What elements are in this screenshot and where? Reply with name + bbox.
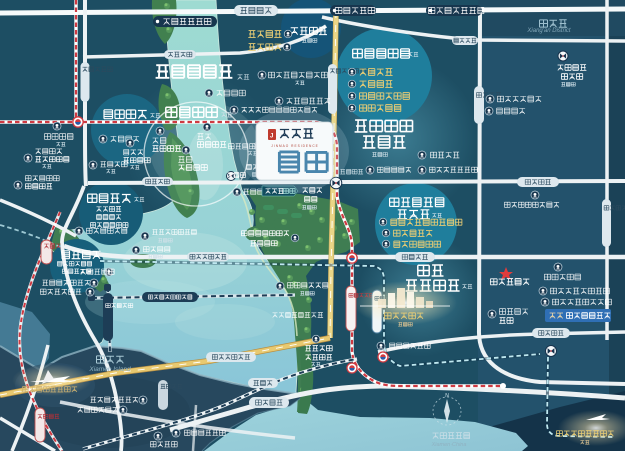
svg-text:Xiamen Island: Xiamen Island bbox=[88, 366, 131, 373]
svg-text:Xiang'an District: Xiang'an District bbox=[526, 28, 570, 34]
svg-text:Xiamen·China: Xiamen·China bbox=[431, 442, 467, 448]
svg-text:N: N bbox=[445, 393, 449, 399]
svg-text:JINMAO RESIDENCE: JINMAO RESIDENCE bbox=[271, 144, 319, 148]
svg-text:J: J bbox=[270, 134, 273, 140]
